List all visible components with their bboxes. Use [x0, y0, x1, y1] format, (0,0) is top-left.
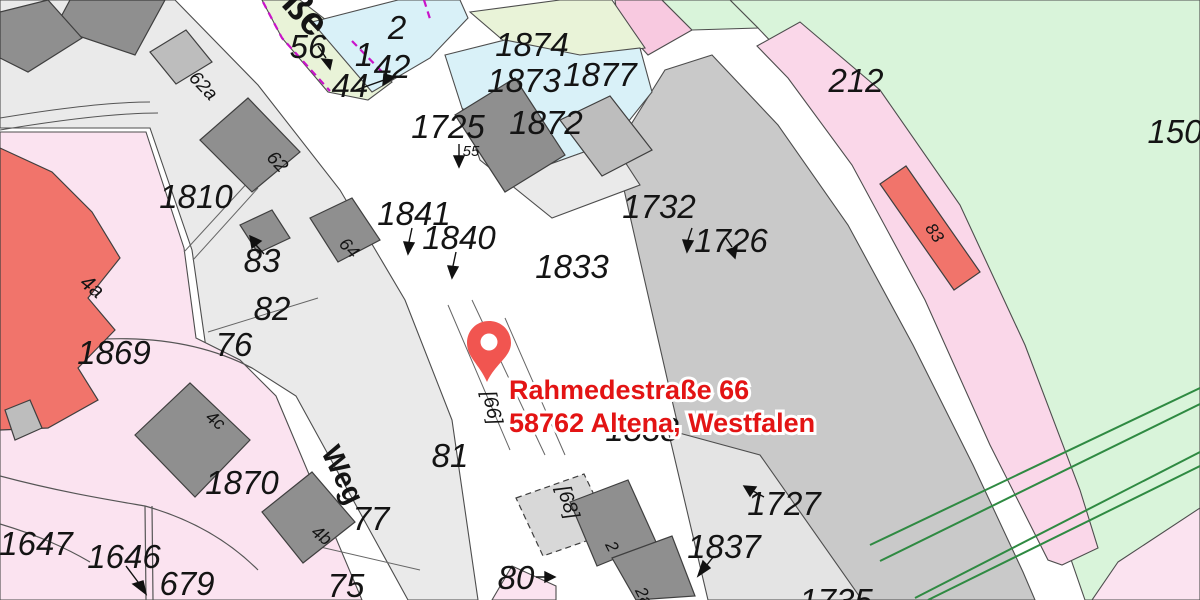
map-label-parcel-56: 56: [290, 28, 327, 65]
map-label-parcel-1840: 1840: [422, 219, 496, 256]
map-label-parcel-1646: 1646: [87, 538, 161, 575]
map-label-parcel-1732: 1732: [622, 188, 695, 225]
map-label-parcel-2: 2: [387, 9, 406, 46]
map-label-parcel-1727: 1727: [747, 485, 822, 522]
map-canvas: ßeWeg56214244187418731877172518722121501…: [0, 0, 1200, 600]
map-label-parcel-82: 82: [254, 290, 291, 327]
map-label-parcel-1725: 1725: [411, 108, 485, 145]
map-label-parcel-1872: 1872: [509, 104, 582, 141]
map-label-parcel-81: 81: [432, 437, 469, 474]
address-line1: Rahmedestraße 66: [509, 375, 749, 405]
map-label-parcel-77: 77: [353, 500, 391, 537]
map-label-parcel-80: 80: [498, 559, 535, 596]
map-label-house-55: 55: [463, 143, 480, 160]
map-label-parcel-212: 212: [827, 62, 883, 99]
map-label-parcel-1647: 1647: [0, 525, 74, 562]
address-line2: 58762 Altena, Westfalen: [509, 408, 815, 438]
map-viewport[interactable]: ßeWeg56214244187418731877172518722121501…: [0, 0, 1200, 600]
map-label-parcel-679: 679: [159, 565, 214, 600]
location-pin-hole: [481, 334, 498, 351]
map-label-parcel-76: 76: [216, 326, 253, 363]
map-label-parcel-1869: 1869: [77, 334, 150, 371]
map-label-parcel-1735: 1735: [799, 582, 873, 600]
map-label-parcel-150: 150: [1147, 113, 1200, 150]
map-label-parcel-75: 75: [328, 567, 365, 600]
map-label-parcel-1810: 1810: [159, 178, 233, 215]
map-label-parcel-44: 44: [332, 67, 369, 104]
map-label-parcel-1837: 1837: [687, 528, 762, 565]
map-label-parcel-83: 83: [244, 242, 281, 279]
map-label-parcel-1874: 1874: [495, 26, 568, 63]
map-label-parcel-1877: 1877: [563, 56, 638, 93]
map-label-parcel-1873: 1873: [487, 62, 561, 99]
map-label-parcel-1833: 1833: [535, 248, 609, 285]
map-label-parcel-1870: 1870: [205, 464, 279, 501]
